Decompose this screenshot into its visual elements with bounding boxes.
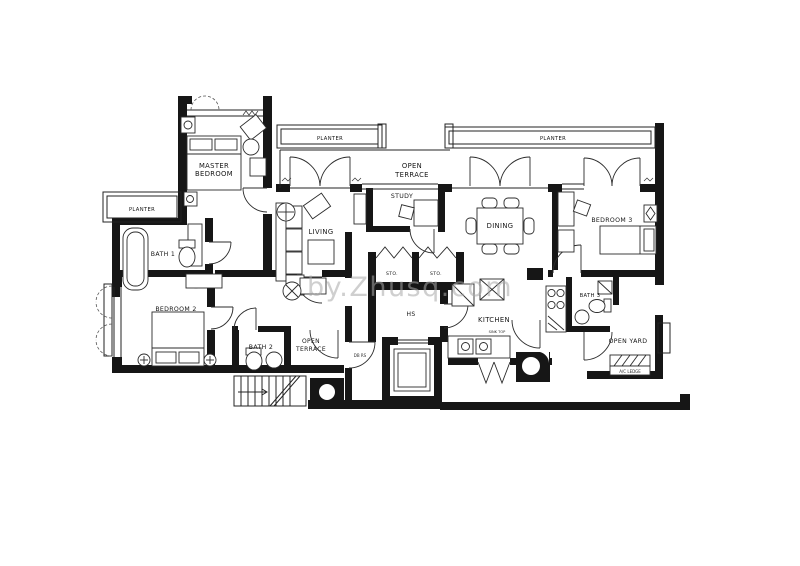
label-dining: DINING (487, 222, 514, 230)
label-ac-ledge: A/C LEDGE (619, 369, 641, 374)
label-kitchen-note: SINK TOP (489, 330, 507, 334)
label-living: LIVING (309, 228, 334, 236)
basin-bath3 (575, 310, 589, 324)
label-open-yard: OPEN YARD (609, 338, 648, 345)
label-sto-right: STO. (430, 271, 442, 277)
label-sto-left: STO. (386, 271, 398, 277)
label-planter-top-right: PLANTER (540, 136, 566, 142)
coffee-table (308, 240, 334, 264)
master-chair (240, 115, 266, 141)
label-bedroom3: BEDROOM 3 (591, 217, 632, 224)
label-riser: DB RS (354, 353, 367, 358)
floorplan-canvas: by.Zhusq.com MASTER BEDROOM PLANTER PLAN… (0, 0, 800, 566)
study-desk (414, 200, 438, 226)
toilet-bath3 (589, 300, 605, 313)
label-bath1: BATH 1 (151, 251, 175, 258)
floorplan-page: by.Zhusq.com MASTER BEDROOM PLANTER PLAN… (0, 0, 800, 566)
label-open-terrace-b2: TERRACE (295, 346, 326, 353)
label-planter-top-left: PLANTER (317, 136, 343, 142)
toilet-bath2 (246, 352, 262, 370)
label-bedroom2: BEDROOM 2 (155, 306, 196, 313)
tv-console (354, 194, 366, 224)
ac-ledge-box (610, 355, 650, 366)
label-bath2: BATH 2 (249, 344, 273, 351)
scan-marks (243, 111, 653, 181)
toilet-bath1 (179, 247, 195, 267)
label-master-bedroom-2: BEDROOM (195, 170, 233, 178)
watermark-text: by.Zhusq.com (307, 272, 513, 303)
label-study: STUDY (391, 193, 413, 200)
label-kitchen: KITCHEN (478, 316, 510, 324)
label-master-bedroom-1: MASTER (199, 162, 229, 170)
dresser (186, 274, 222, 288)
label-bath3: BATH 3 (580, 293, 601, 299)
label-open-terrace-1: OPEN (402, 162, 422, 170)
label-open-terrace-2: TERRACE (394, 171, 429, 179)
armchair (303, 193, 330, 219)
label-hs: HS (406, 311, 415, 318)
label-planter-left: PLANTER (129, 207, 155, 213)
basin-bath2 (266, 352, 282, 368)
desk3 (558, 192, 574, 226)
label-open-terrace-b1: OPEN (302, 338, 320, 345)
